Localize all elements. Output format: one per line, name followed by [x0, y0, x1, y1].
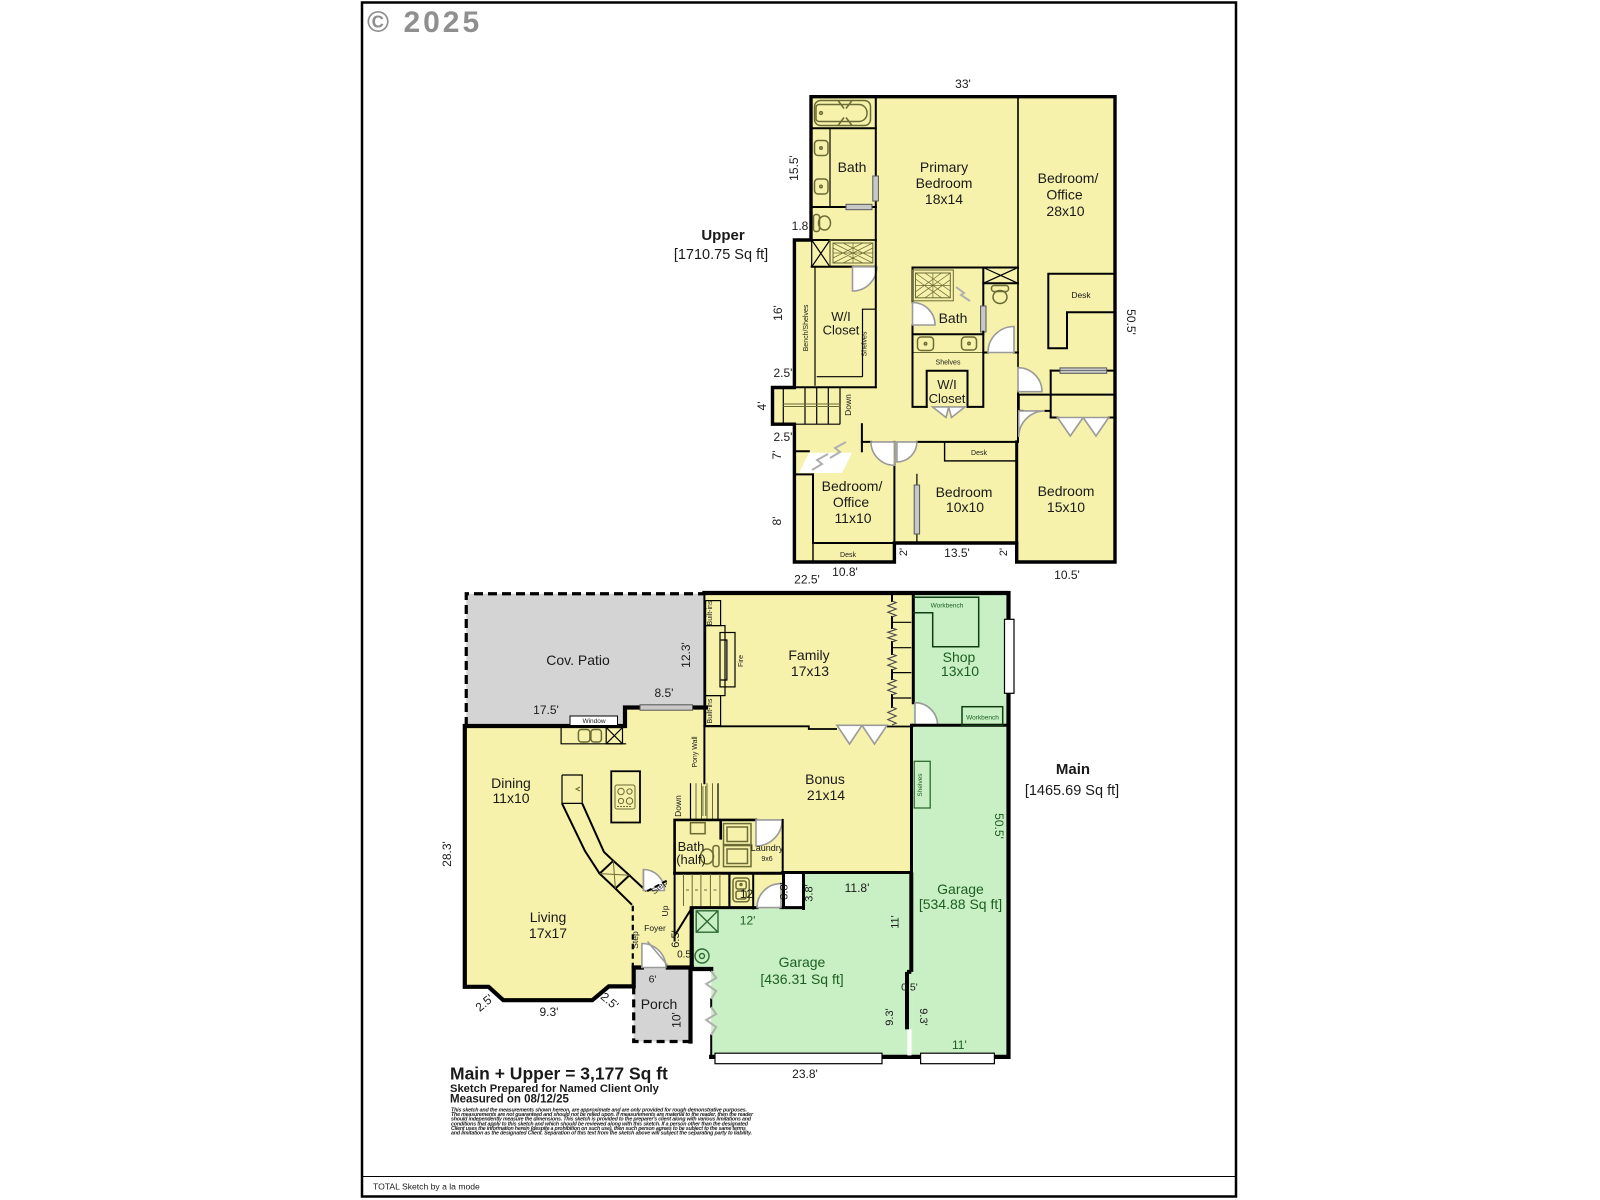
- svg-text:1.8: 1.8: [792, 219, 809, 233]
- svg-text:6.5': 6.5': [670, 930, 682, 947]
- svg-text:9.3': 9.3': [917, 1008, 929, 1025]
- svg-text:© 2025: © 2025: [367, 6, 482, 39]
- svg-text:Bedroom/: Bedroom/: [1038, 170, 1099, 186]
- svg-text:Bedroom: Bedroom: [916, 175, 973, 191]
- svg-text:Porch: Porch: [641, 996, 678, 1012]
- svg-text:12: 12: [740, 887, 754, 901]
- svg-text:4': 4': [755, 402, 769, 411]
- svg-text:Desk: Desk: [971, 450, 987, 457]
- svg-text:Garage: Garage: [779, 954, 826, 970]
- svg-text:2': 2': [898, 548, 910, 556]
- svg-text:2.5': 2.5': [774, 366, 793, 380]
- svg-text:50.5': 50.5': [1124, 309, 1138, 335]
- svg-text:22.5': 22.5': [794, 573, 820, 587]
- svg-text:Main + Upper = 3,177 Sq ft: Main + Upper = 3,177 Sq ft: [450, 1064, 668, 1084]
- svg-text:10': 10': [670, 1012, 684, 1028]
- svg-text:11.8': 11.8': [845, 881, 870, 895]
- svg-text:12': 12': [740, 914, 756, 928]
- svg-text:Cov. Patio: Cov. Patio: [546, 652, 610, 668]
- svg-text:8.5': 8.5': [655, 686, 674, 700]
- svg-text:7': 7': [770, 451, 784, 460]
- svg-text:3.8': 3.8': [804, 884, 816, 901]
- svg-text:Bedroom/: Bedroom/: [822, 478, 883, 494]
- svg-text:Shelves: Shelves: [936, 360, 961, 367]
- svg-text:Measured on 08/12/25: Measured on 08/12/25: [450, 1094, 569, 1106]
- svg-text:Fire: Fire: [738, 655, 745, 667]
- svg-text:Garage: Garage: [937, 881, 984, 897]
- svg-text:28x10: 28x10: [1046, 203, 1084, 219]
- svg-text:23.8': 23.8': [792, 1067, 818, 1081]
- svg-text:11': 11': [889, 915, 901, 929]
- svg-text:16': 16': [771, 305, 785, 321]
- svg-text:Pony Wall: Pony Wall: [692, 736, 699, 768]
- svg-text:Built-ins: Built-ins: [707, 600, 714, 625]
- svg-text:Dining: Dining: [491, 775, 531, 791]
- svg-text:9x6: 9x6: [761, 856, 772, 863]
- svg-text:13.5': 13.5': [944, 546, 970, 560]
- svg-text:Window: Window: [582, 718, 605, 725]
- svg-text:W/I: W/I: [937, 377, 957, 392]
- svg-text:TOTAL Sketch by a la mode: TOTAL Sketch by a la mode: [373, 1182, 480, 1192]
- svg-text:Workbench: Workbench: [931, 603, 964, 610]
- svg-text:2': 2': [998, 548, 1010, 556]
- svg-text:Living: Living: [530, 909, 567, 925]
- svg-text:Bonus: Bonus: [805, 771, 845, 787]
- svg-text:10x10: 10x10: [946, 499, 984, 515]
- svg-text:11x10: 11x10: [834, 510, 871, 526]
- svg-text:Bedroom: Bedroom: [1038, 483, 1095, 499]
- svg-text:15x10: 15x10: [1047, 499, 1085, 515]
- svg-text:17x13: 17x13: [791, 663, 829, 679]
- svg-text:18x14: 18x14: [925, 191, 963, 207]
- svg-text:Shelves: Shelves: [917, 773, 924, 797]
- svg-text:6': 6': [649, 974, 657, 986]
- svg-text:Down: Down: [843, 394, 853, 416]
- svg-text:Bath: Bath: [838, 159, 867, 175]
- svg-text:17.5': 17.5': [533, 703, 559, 717]
- svg-text:15.5': 15.5': [787, 155, 801, 181]
- svg-text:8': 8': [770, 517, 784, 526]
- svg-text:Desk: Desk: [840, 552, 856, 559]
- svg-text:Workbench: Workbench: [966, 715, 999, 722]
- svg-text:Primary: Primary: [920, 159, 968, 175]
- svg-text:21x14: 21x14: [807, 787, 845, 803]
- svg-text:10.5': 10.5': [1054, 568, 1080, 582]
- svg-text:[534.88 Sq ft]: [534.88 Sq ft]: [919, 896, 1002, 912]
- svg-text:Office: Office: [833, 494, 870, 510]
- svg-text:2.5': 2.5': [774, 430, 793, 444]
- svg-text:Closet: Closet: [929, 391, 966, 406]
- svg-text:and limitation as the designat: and limitation as the designated Client.…: [451, 1131, 753, 1137]
- svg-text:[1710.75 Sq ft]: [1710.75 Sq ft]: [674, 247, 768, 263]
- svg-text:0.5': 0.5': [677, 950, 693, 961]
- svg-text:Laundry: Laundry: [751, 843, 784, 853]
- svg-text:28.3': 28.3': [440, 841, 454, 867]
- svg-text:11x10: 11x10: [492, 790, 529, 806]
- svg-text:Step: Step: [630, 931, 640, 949]
- svg-text:Foyer: Foyer: [644, 923, 666, 933]
- svg-text:9.3': 9.3': [884, 1008, 896, 1025]
- svg-text:Bath: Bath: [939, 310, 968, 326]
- svg-text:[436.31 Sq ft]: [436.31 Sq ft]: [760, 971, 843, 987]
- svg-text:Bedroom: Bedroom: [936, 484, 993, 500]
- svg-text:17x17: 17x17: [529, 925, 567, 941]
- svg-text:(half): (half): [676, 852, 706, 867]
- svg-text:33': 33': [955, 77, 971, 91]
- svg-text:Closet: Closet: [823, 323, 860, 338]
- svg-text:Down: Down: [673, 795, 683, 817]
- svg-text:Bench/Shelves: Bench/Shelves: [803, 304, 810, 351]
- svg-text:Upper: Upper: [701, 227, 745, 244]
- svg-text:Family: Family: [788, 647, 829, 663]
- svg-text:Shelves: Shelves: [862, 331, 869, 356]
- svg-text:[1465.69 Sq ft]: [1465.69 Sq ft]: [1025, 783, 1119, 799]
- svg-text:11': 11': [952, 1038, 967, 1052]
- svg-text:13x10: 13x10: [941, 663, 979, 679]
- svg-text:Built-ins: Built-ins: [707, 698, 714, 723]
- svg-text:0.5': 0.5': [901, 982, 918, 994]
- svg-text:50.5': 50.5': [992, 813, 1006, 839]
- svg-text:3.8': 3.8': [779, 882, 791, 899]
- svg-text:9.3': 9.3': [540, 1005, 559, 1019]
- svg-text:Up: Up: [660, 905, 670, 916]
- svg-text:Office: Office: [1046, 187, 1083, 203]
- svg-text:Main: Main: [1056, 761, 1090, 778]
- svg-text:12.3': 12.3': [679, 642, 693, 668]
- svg-text:10.8': 10.8': [832, 565, 858, 579]
- svg-text:Desk: Desk: [1071, 290, 1091, 300]
